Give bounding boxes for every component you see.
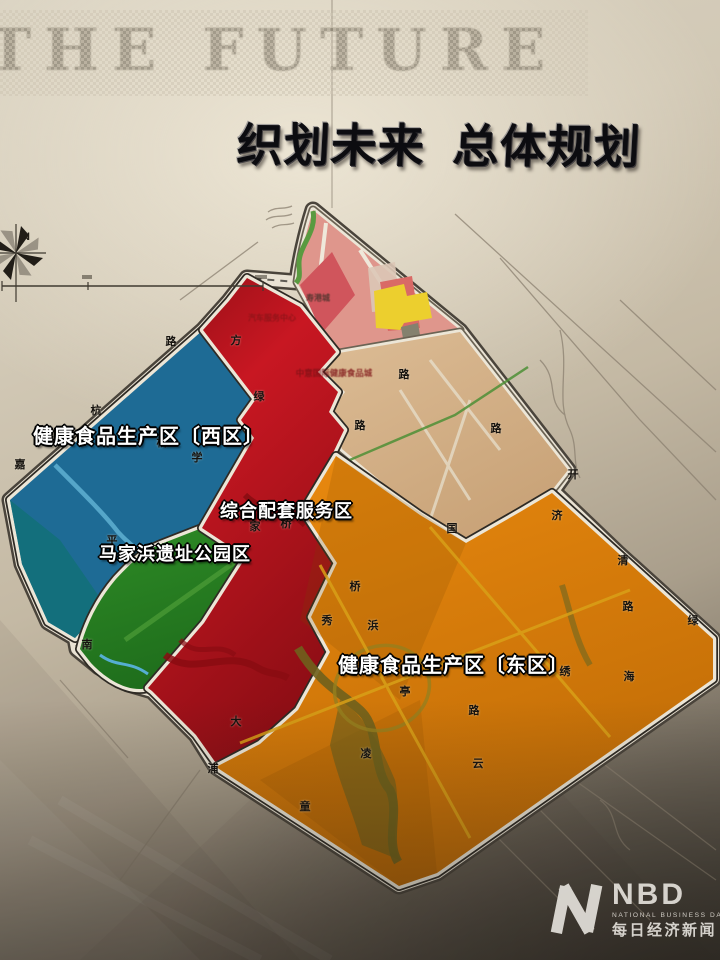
- exhibit-title: 织划未来总体规划: [235, 109, 643, 177]
- title-part1: 织划未来: [235, 119, 426, 172]
- zone-label-service: 综合配套服务区: [220, 497, 353, 523]
- zone-label-west: 健康食品生产区〔西区〕: [33, 420, 264, 449]
- nbd-logo-icon: [546, 881, 604, 937]
- planning-wall-photo: { "header": { "watermark": "THE FUTURE",…: [0, 0, 720, 960]
- zone-label-east: 健康食品生产区〔东区〕: [338, 649, 569, 678]
- zone-label-park: 马家浜遗址公园区: [99, 540, 251, 566]
- nbd-chinese-name: 每日经济新闻: [612, 923, 720, 938]
- nbd-watermark: NBD NATIONAL BUSINESS DAILY 每日经济新闻: [546, 880, 720, 938]
- title-part2: 总体规划: [451, 120, 642, 173]
- nbd-full-name: NATIONAL BUSINESS DAILY: [612, 913, 720, 920]
- nbd-abbr: NBD: [612, 880, 720, 910]
